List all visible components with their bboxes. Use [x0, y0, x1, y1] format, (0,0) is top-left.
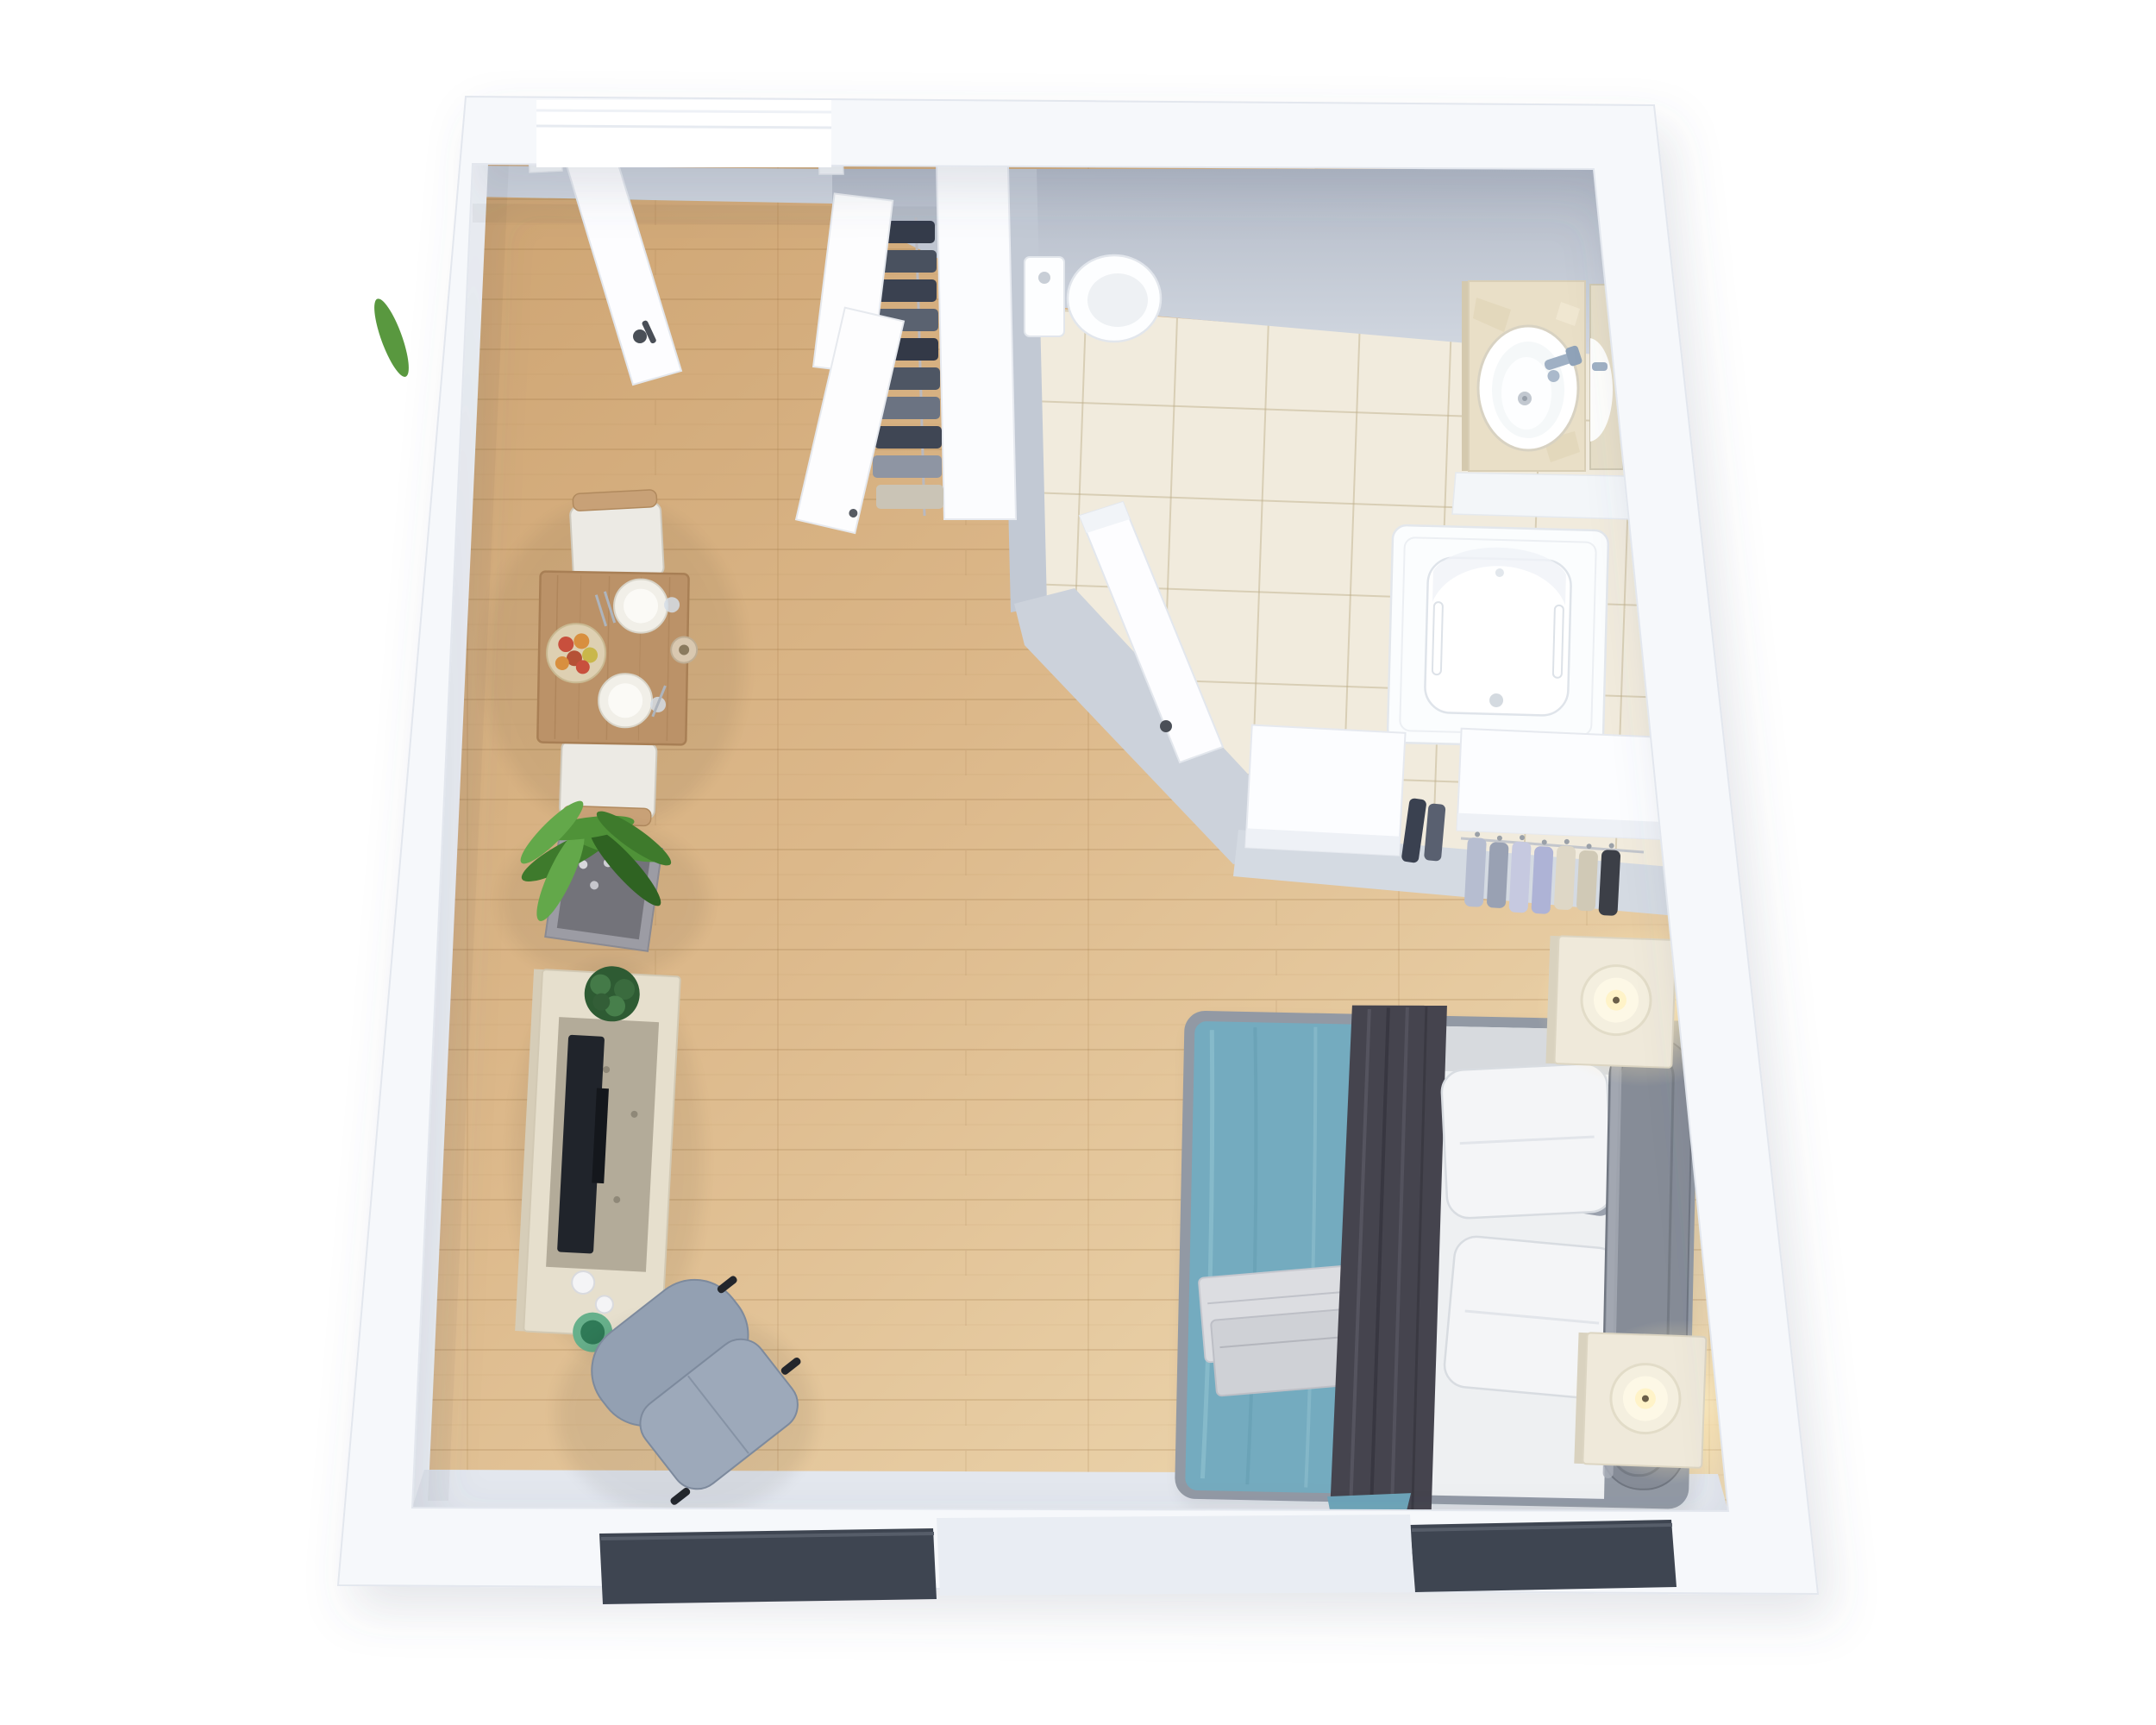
vanity-sink — [1462, 281, 1586, 471]
cup-large — [572, 1270, 595, 1294]
dining-table — [537, 572, 698, 745]
toilet-flush-button — [1038, 272, 1050, 284]
window-sill-left — [599, 1528, 937, 1604]
floor-plan-scene — [0, 0, 2156, 1725]
bathtub-grab-bar-left — [1432, 602, 1443, 674]
table-candle — [671, 637, 698, 663]
floor-plan-render — [0, 0, 2156, 1725]
bathtub-grab-bar-right — [1553, 605, 1564, 678]
bathroom-door-handle — [1160, 720, 1172, 732]
fruit-plate — [546, 624, 605, 683]
pillow-top — [1441, 1063, 1614, 1219]
dining-chair-top — [569, 489, 664, 580]
wardrobe-panel — [936, 128, 1016, 519]
entry-door-handle — [633, 329, 647, 343]
bathtub — [1388, 525, 1609, 748]
vanity-shelf — [1452, 473, 1632, 519]
toilet — [1025, 255, 1161, 342]
wall-segment-between-windows — [937, 1515, 1414, 1596]
cup-small — [595, 1295, 613, 1314]
